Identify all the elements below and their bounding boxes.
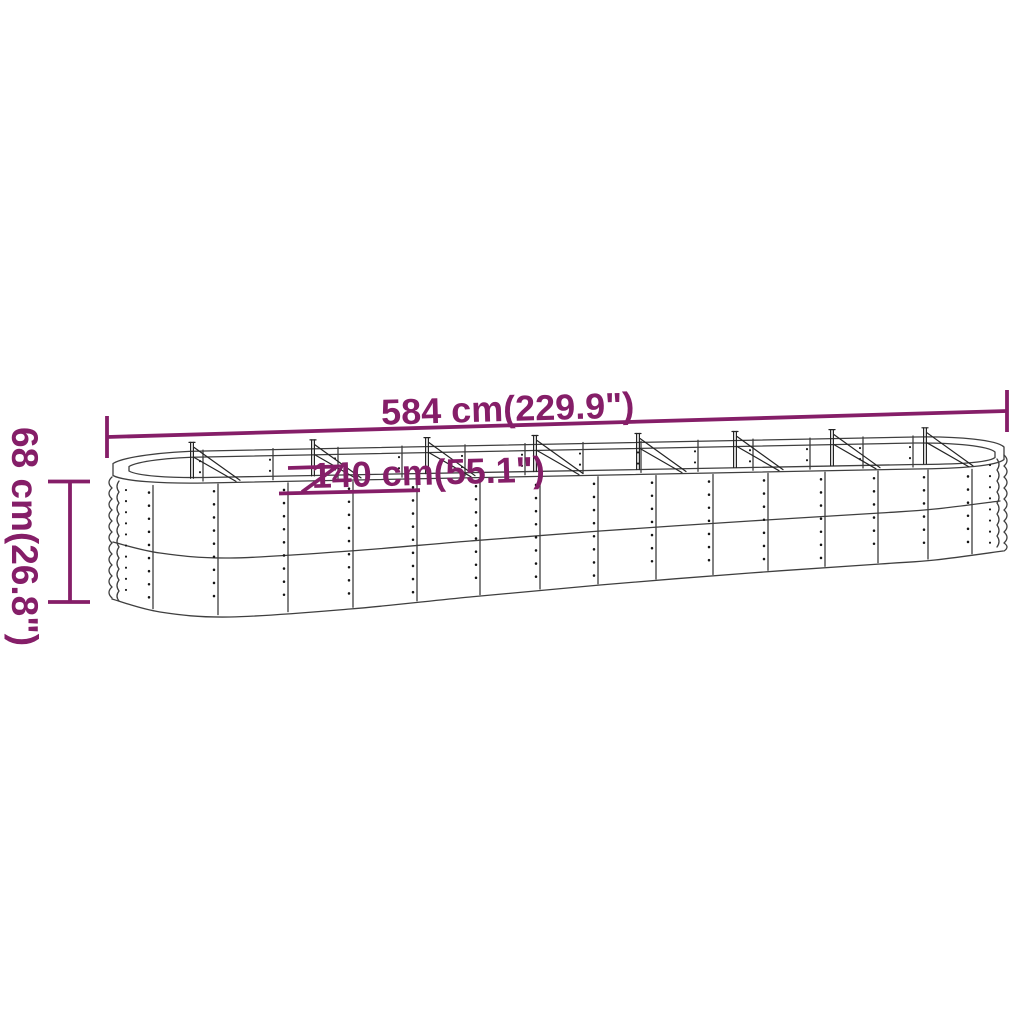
product-dimension-diagram: 584 cm(229.9") 140 cm(55.1") 68 cm(26.8"… [0, 0, 1024, 1024]
figure: 584 cm(229.9") 140 cm(55.1") 68 cm(26.8"… [0, 0, 1024, 1024]
brace-post [831, 430, 834, 466]
right-wavy-edge [1004, 455, 1007, 551]
brace-strut [737, 437, 783, 471]
brace-strut [834, 435, 880, 469]
height-dimension: 68 cm(26.8") [4, 427, 90, 646]
mid-rib [113, 501, 1000, 558]
brace-post [924, 428, 927, 464]
brace-strut [640, 439, 686, 473]
right-wavy-inner [997, 459, 999, 547]
length-label: 584 cm(229.9") [380, 384, 634, 432]
planter-drawing [109, 428, 1007, 617]
width-label: 140 cm(55.1") [311, 449, 545, 496]
height-label: 68 cm(26.8") [4, 427, 45, 646]
brace-post [734, 432, 737, 468]
brace-strut [194, 447, 240, 481]
left-wavy-edge [109, 477, 112, 598]
inner-rim [129, 443, 995, 478]
width-dimension: 140 cm(55.1") [279, 449, 545, 496]
bottom-edge [112, 551, 1003, 617]
brace-post [191, 442, 194, 478]
left-wavy-inner [117, 481, 119, 601]
length-dimension: 584 cm(229.9") [107, 384, 1007, 458]
